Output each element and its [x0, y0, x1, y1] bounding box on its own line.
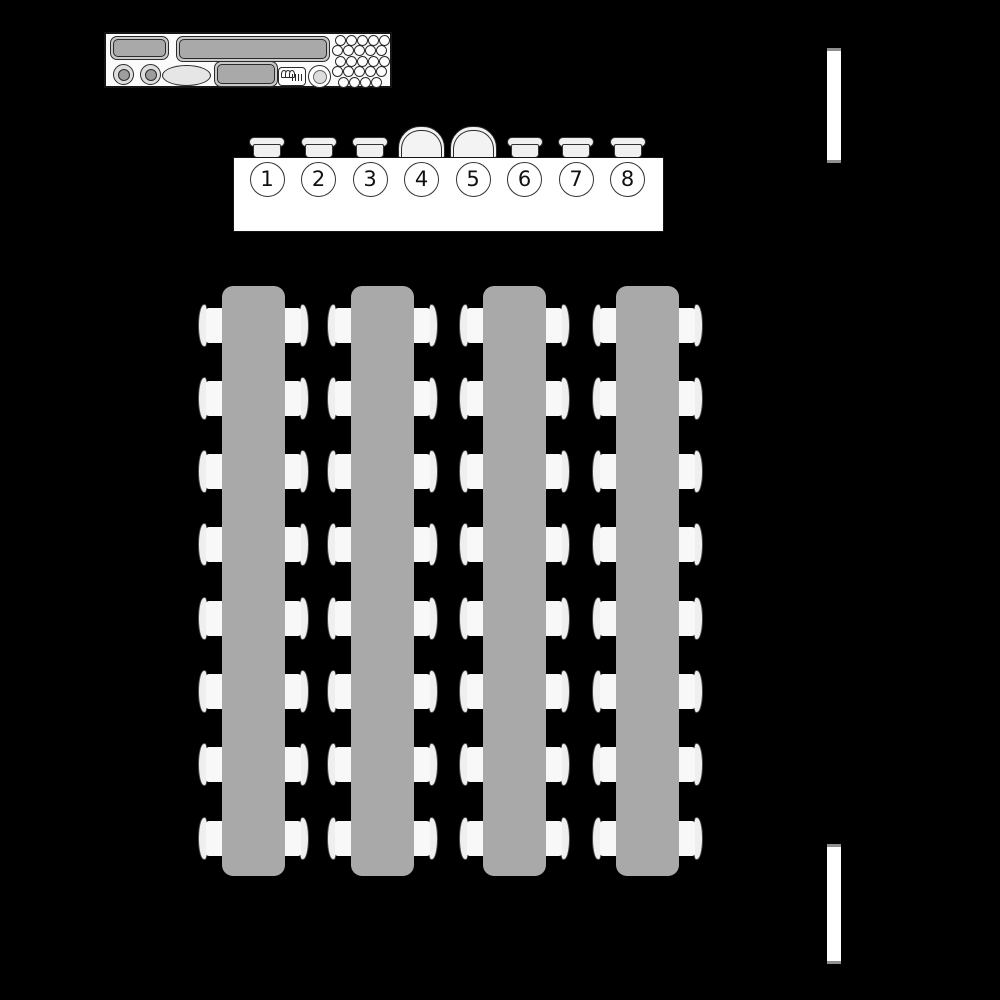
seat-number-badge: 4	[404, 162, 439, 197]
head-chair-1	[249, 137, 285, 158]
chair-seat	[413, 527, 430, 562]
glass-icon	[349, 77, 360, 88]
chair-seat	[600, 601, 617, 636]
chair-seat	[467, 821, 484, 856]
chair-seat	[467, 601, 484, 636]
seat-number-badge: 5	[456, 162, 491, 197]
banquet-chair	[545, 450, 570, 493]
banquet-chair	[327, 817, 352, 860]
banquet-chair	[592, 743, 617, 786]
register-lines-icon	[292, 74, 302, 81]
chair-seat	[335, 454, 352, 489]
glass-icon	[332, 66, 343, 77]
banquet-chair	[284, 304, 309, 347]
counter-unit-long-top	[179, 39, 327, 59]
chair-seat	[206, 527, 223, 562]
seat-number-badge: 1	[250, 162, 285, 197]
banquet-chair	[678, 743, 703, 786]
banquet-chair	[678, 670, 703, 713]
chair-seat	[600, 821, 617, 856]
banquet-chair	[678, 817, 703, 860]
banquet-chair	[678, 450, 703, 493]
banquet-chair	[459, 670, 484, 713]
banquet-chair	[459, 817, 484, 860]
glass-icon	[379, 35, 390, 46]
chair-seat	[253, 144, 281, 158]
banquet-chair	[413, 377, 438, 420]
banquet-chair	[413, 450, 438, 493]
banquet-chair	[678, 597, 703, 640]
banquet-chair	[327, 450, 352, 493]
door-top-right	[827, 48, 841, 163]
head-chair-8	[610, 137, 646, 158]
chair-seat	[467, 674, 484, 709]
head-chair-3	[352, 137, 388, 158]
glass-icon	[360, 77, 371, 88]
banquet-chair	[413, 523, 438, 566]
glass-icon	[357, 56, 368, 67]
banquet-chair	[284, 670, 309, 713]
chair-seat	[284, 821, 301, 856]
burner-core	[145, 69, 157, 81]
glass-icon	[379, 56, 390, 67]
chair-seat	[467, 454, 484, 489]
head-chair-6	[507, 137, 543, 158]
chair-seat	[511, 144, 539, 158]
chair-seat	[600, 454, 617, 489]
chair-seat	[335, 527, 352, 562]
banquet-chair	[545, 670, 570, 713]
chair-seat	[335, 747, 352, 782]
chair-seat	[678, 747, 695, 782]
banquet-chair	[198, 670, 223, 713]
banquet-table-3	[483, 286, 546, 876]
chair-seat	[545, 527, 562, 562]
chair-seat	[678, 308, 695, 343]
chair-seat	[335, 601, 352, 636]
glass-icon	[371, 77, 382, 88]
chair-seat	[206, 308, 223, 343]
chair-seat	[284, 674, 301, 709]
chair-seat	[335, 308, 352, 343]
chair-seat	[467, 308, 484, 343]
banquet-chair	[678, 377, 703, 420]
stool	[308, 65, 331, 88]
chair-seat	[284, 601, 301, 636]
banquet-chair	[545, 743, 570, 786]
banquet-chair	[678, 523, 703, 566]
glass-icon	[357, 35, 368, 46]
glass-icon	[365, 66, 376, 77]
door-bottom-right	[827, 844, 841, 964]
banquet-chair	[545, 304, 570, 347]
chair-seat	[284, 454, 301, 489]
chair-seat	[305, 144, 333, 158]
service-counter	[104, 32, 392, 88]
seat-number-badge: 2	[301, 162, 336, 197]
glass-rack	[332, 35, 390, 88]
banquet-chair	[198, 743, 223, 786]
chair-seat	[678, 454, 695, 489]
burner-core	[118, 69, 130, 81]
chair-seat	[562, 144, 590, 158]
glass-icon	[338, 77, 349, 88]
banquet-chair	[592, 817, 617, 860]
glass-icon	[368, 35, 379, 46]
chair-seat	[206, 454, 223, 489]
banquet-chair	[459, 304, 484, 347]
chair-seat	[413, 821, 430, 856]
banquet-chair	[327, 377, 352, 420]
chair-seat	[206, 747, 223, 782]
seat-number-badge: 8	[610, 162, 645, 197]
chair-seat	[284, 308, 301, 343]
banquet-chair	[327, 523, 352, 566]
banquet-chair	[198, 523, 223, 566]
stool-core	[313, 70, 327, 84]
banquet-chair	[592, 377, 617, 420]
chair-seat	[600, 527, 617, 562]
chair-seat	[335, 821, 352, 856]
banquet-table-4	[616, 286, 679, 876]
banquet-chair	[284, 523, 309, 566]
chair-seat	[356, 144, 384, 158]
head-table	[233, 157, 664, 232]
banquet-chair	[327, 670, 352, 713]
glass-icon	[354, 45, 365, 56]
chair-seat	[413, 454, 430, 489]
banquet-chair	[592, 304, 617, 347]
banquet-floor-plan: 12345678	[0, 0, 1000, 1000]
chair-seat	[467, 747, 484, 782]
banquet-chair	[413, 597, 438, 640]
seat-number-badge: 7	[559, 162, 594, 197]
chair-seat	[413, 747, 430, 782]
banquet-chair	[198, 450, 223, 493]
glass-icon	[354, 66, 365, 77]
chair-seat	[335, 381, 352, 416]
banquet-chair	[327, 597, 352, 640]
banquet-chair	[459, 597, 484, 640]
glass-icon	[343, 66, 354, 77]
chair-seat	[413, 381, 430, 416]
counter-unit-small-top	[113, 39, 166, 57]
banquet-chair	[413, 670, 438, 713]
banquet-chair	[284, 450, 309, 493]
banquet-chair	[413, 743, 438, 786]
banquet-chair	[545, 597, 570, 640]
chair-seat	[413, 601, 430, 636]
register-box	[278, 67, 306, 86]
chair-seat	[545, 308, 562, 343]
glass-icon	[368, 56, 379, 67]
chair-seat	[284, 527, 301, 562]
chair-seat	[206, 674, 223, 709]
chair-seat	[284, 747, 301, 782]
glass-icon	[376, 66, 387, 77]
counter-unit-center	[214, 61, 278, 87]
chair-seat	[413, 674, 430, 709]
banquet-chair	[459, 743, 484, 786]
chair-seat	[678, 381, 695, 416]
chair-seat	[206, 821, 223, 856]
banquet-chair	[592, 670, 617, 713]
chair-seat	[335, 674, 352, 709]
chair-seat	[206, 601, 223, 636]
banquet-chair	[592, 450, 617, 493]
chair-seat	[600, 381, 617, 416]
banquet-chair	[198, 597, 223, 640]
chair-seat	[206, 381, 223, 416]
chair-seat	[284, 381, 301, 416]
head-armchair-5	[450, 126, 497, 158]
banquet-chair	[198, 377, 223, 420]
banquet-chair	[459, 377, 484, 420]
seat-number-badge: 3	[353, 162, 388, 197]
burner-icon	[113, 64, 134, 85]
head-chair-2	[301, 137, 337, 158]
banquet-chair	[459, 523, 484, 566]
chair-seat	[678, 601, 695, 636]
chair-seat	[545, 674, 562, 709]
glass-icon	[365, 45, 376, 56]
banquet-chair	[284, 817, 309, 860]
banquet-chair	[459, 450, 484, 493]
banquet-chair	[327, 743, 352, 786]
chair-seat	[545, 601, 562, 636]
chair-seat	[600, 674, 617, 709]
chair-seat	[467, 527, 484, 562]
banquet-chair	[413, 817, 438, 860]
seat-number-badge: 6	[507, 162, 542, 197]
chair-seat	[678, 527, 695, 562]
banquet-chair	[284, 377, 309, 420]
banquet-chair	[678, 304, 703, 347]
chair-seat	[545, 454, 562, 489]
glass-icon	[376, 45, 387, 56]
banquet-chair	[592, 597, 617, 640]
banquet-chair	[545, 817, 570, 860]
chair-seat	[413, 308, 430, 343]
banquet-chair	[198, 304, 223, 347]
counter-unit-center-top	[217, 64, 275, 84]
chair-seat	[600, 747, 617, 782]
banquet-chair	[284, 743, 309, 786]
glass-icon	[346, 56, 357, 67]
banquet-chair	[327, 304, 352, 347]
chair-seat	[614, 144, 642, 158]
counter-unit-small	[110, 36, 169, 60]
chair-seat	[545, 381, 562, 416]
banquet-chair	[198, 817, 223, 860]
head-chair-7	[558, 137, 594, 158]
burner-icon	[140, 64, 161, 85]
chair-seat	[545, 747, 562, 782]
chair-seat	[678, 821, 695, 856]
banquet-chair	[284, 597, 309, 640]
banquet-chair	[413, 304, 438, 347]
chair-seat	[467, 381, 484, 416]
chair-seat	[600, 308, 617, 343]
glass-icon	[346, 35, 357, 46]
glass-icon	[335, 56, 346, 67]
counter-unit-long	[176, 36, 330, 62]
glass-icon	[335, 35, 346, 46]
banquet-table-2	[351, 286, 414, 876]
head-armchair-4	[398, 126, 445, 158]
banquet-chair	[545, 377, 570, 420]
banquet-table-1	[222, 286, 285, 876]
glass-icon	[332, 45, 343, 56]
banquet-chair	[545, 523, 570, 566]
glass-icon	[343, 45, 354, 56]
serving-platter	[162, 65, 211, 86]
banquet-chair	[592, 523, 617, 566]
chair-seat	[545, 821, 562, 856]
chair-seat	[678, 674, 695, 709]
